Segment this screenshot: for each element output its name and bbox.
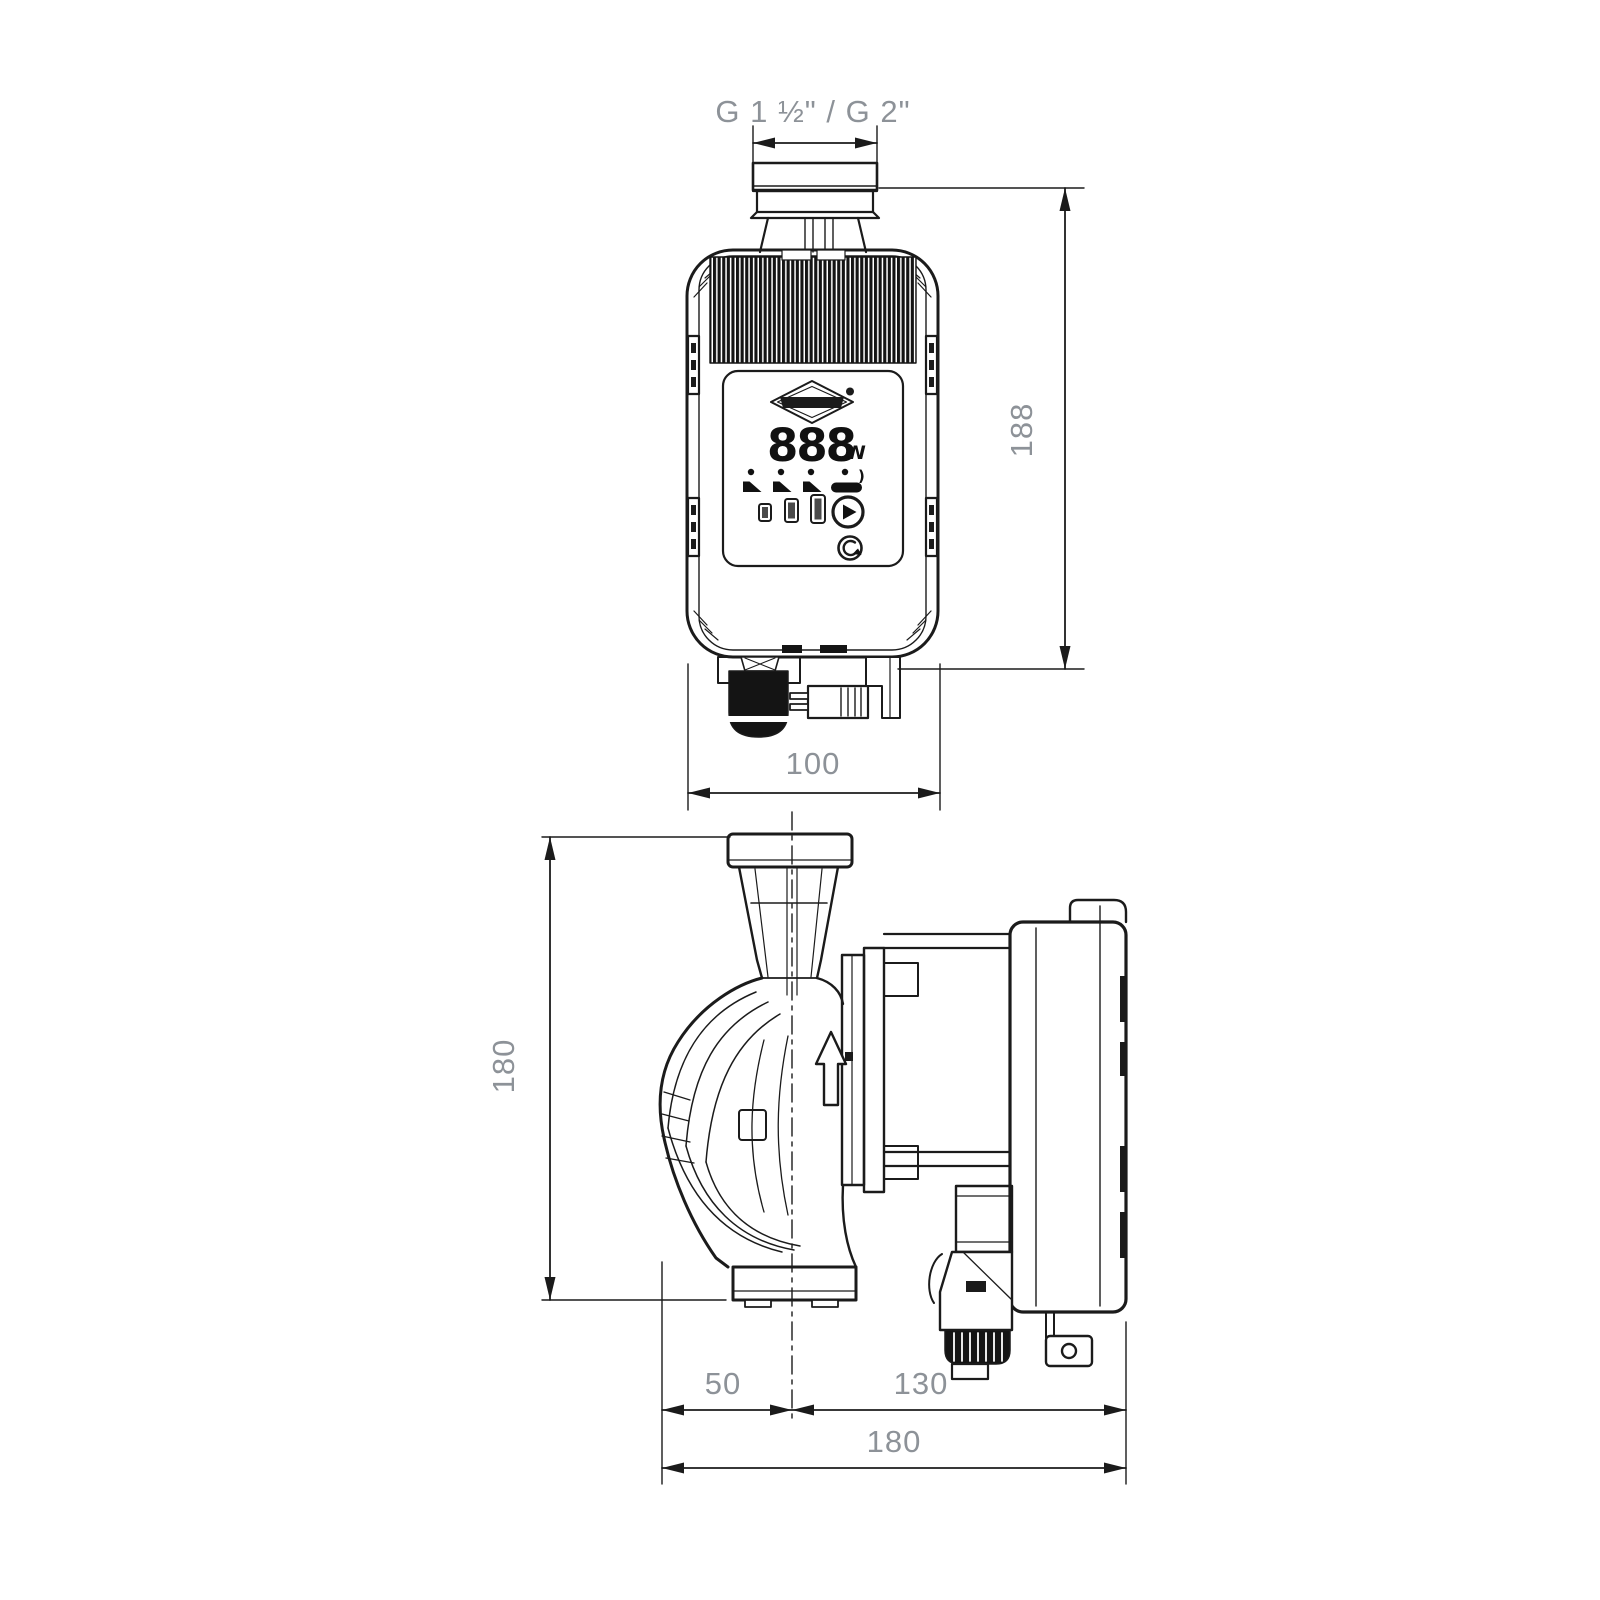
arrowhead-right bbox=[855, 138, 877, 149]
registered-mark-dot-icon bbox=[846, 388, 854, 396]
mode-dot-1-icon bbox=[748, 469, 754, 475]
side-total-length-label: 180 bbox=[867, 1424, 922, 1459]
gland-nut-icon bbox=[729, 671, 788, 737]
side-offset-left-label: 50 bbox=[705, 1366, 741, 1401]
cable-gland-front bbox=[718, 645, 900, 737]
cable-gland-side bbox=[929, 1186, 1012, 1379]
plug-bracket bbox=[1046, 1312, 1092, 1366]
ribbed-band bbox=[710, 257, 916, 363]
control-box-side bbox=[1010, 900, 1127, 1312]
side-height-label: 180 bbox=[486, 1039, 521, 1094]
side-offset-right-label: 130 bbox=[894, 1366, 949, 1401]
dim-side-height: 180 bbox=[486, 837, 730, 1300]
display-panel: 888 W ) bbox=[723, 371, 903, 566]
drawing-canvas: G 1 ½" / G 2" bbox=[0, 0, 1600, 1600]
thread-size-label: G 1 ½" / G 2" bbox=[715, 94, 910, 129]
auto-mode-dot-icon bbox=[842, 469, 848, 475]
vent-slot-right bbox=[817, 250, 845, 260]
power-connector-front bbox=[808, 686, 868, 718]
vent-slot-left bbox=[782, 250, 811, 260]
front-width-label: 100 bbox=[786, 746, 841, 781]
motor-section bbox=[816, 934, 1010, 1192]
arrowhead-left bbox=[753, 138, 775, 149]
pump-volute bbox=[660, 978, 856, 1267]
technical-drawing: G 1 ½" / G 2" bbox=[0, 0, 1600, 1600]
mode-superscript: ) bbox=[858, 467, 865, 485]
inlet-flange-top bbox=[728, 834, 852, 995]
outlet-flange-bottom bbox=[733, 1267, 856, 1307]
mode-dot-3-icon bbox=[808, 469, 814, 475]
front-view: G 1 ½" / G 2" bbox=[687, 94, 1084, 810]
power-unit-label: W bbox=[845, 442, 866, 464]
power-readout: 888 bbox=[767, 419, 855, 472]
side-view: 180 50 130 180 bbox=[486, 812, 1127, 1484]
pipe-union-fitting bbox=[751, 163, 879, 252]
front-height-label: 188 bbox=[1004, 403, 1039, 458]
mode-dot-2-icon bbox=[778, 469, 784, 475]
